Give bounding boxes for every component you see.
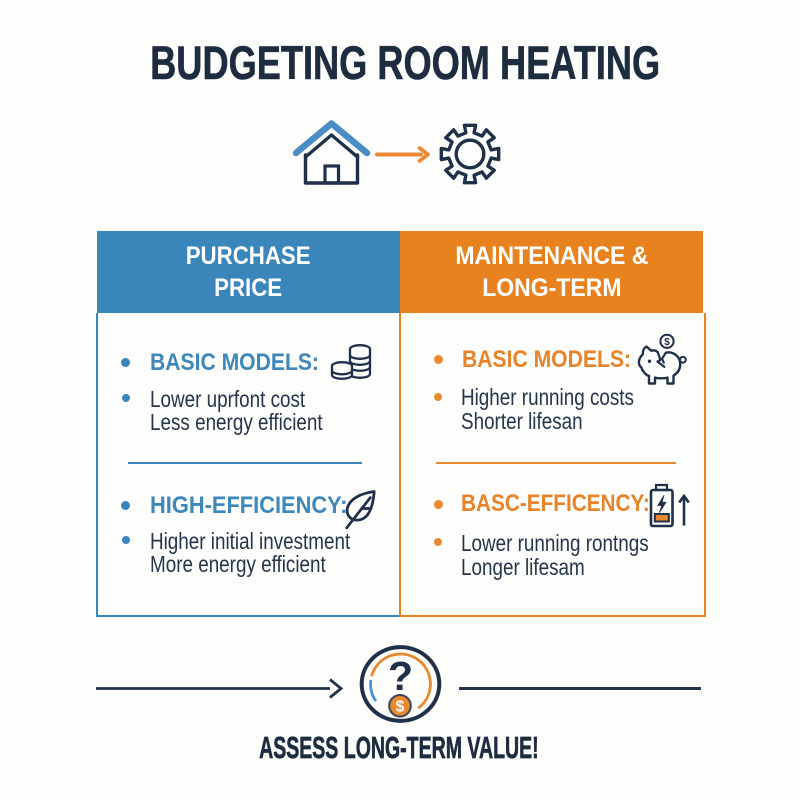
svg-text:$: $ (664, 337, 670, 348)
svg-text:?: ? (388, 653, 413, 699)
svg-text:$: $ (396, 698, 405, 715)
